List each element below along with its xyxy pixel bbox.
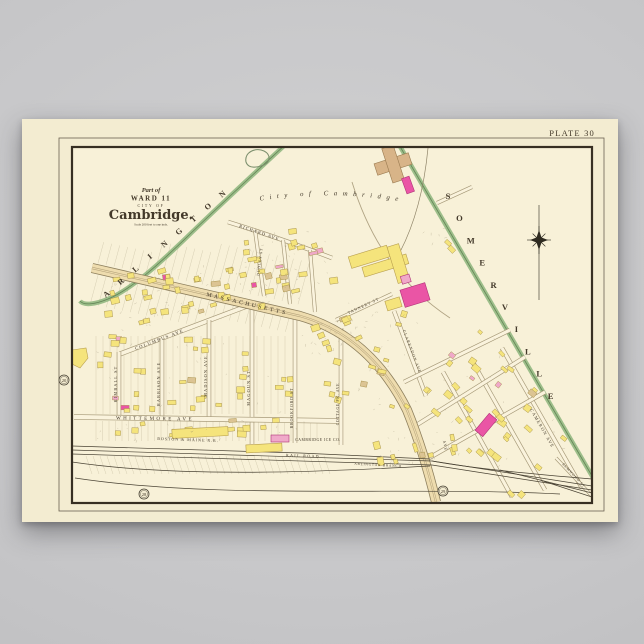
building [184, 337, 193, 342]
building [211, 281, 220, 287]
building [115, 431, 121, 436]
building [329, 391, 335, 397]
building [188, 301, 194, 307]
boundary-letter-somerville: M [467, 235, 475, 245]
product-mockup-background: MASSACHUSETTSAVECOLUMBUS AVEWHITTEMORE A… [0, 0, 644, 644]
street-label-magoun: MAGOUN ST [246, 370, 251, 406]
cartouche-ward: WARD 11 [131, 195, 171, 203]
building [194, 276, 200, 282]
building [181, 307, 188, 314]
ice-house [246, 443, 282, 453]
plate-ref-badge: 28 [139, 489, 149, 499]
building [360, 381, 367, 387]
building [288, 228, 296, 234]
building [276, 278, 281, 284]
building [216, 403, 222, 407]
boundary-letter-somerville: E [548, 391, 554, 401]
building [163, 285, 170, 289]
building [428, 453, 433, 458]
building [134, 391, 139, 396]
plate-ref-number: 20 [62, 378, 67, 383]
map-poster: MASSACHUSETTSAVECOLUMBUS AVEWHITTEMORE A… [22, 119, 618, 522]
building [251, 282, 257, 287]
building [299, 271, 308, 277]
building [287, 376, 293, 382]
boundary-letter-somerville: V [502, 302, 509, 312]
building [132, 428, 139, 434]
boundary-letter-somerville: O [456, 213, 463, 223]
ice-company-building [271, 435, 289, 442]
building [324, 381, 331, 386]
boundary-letter-somerville: L [536, 369, 542, 379]
cartouche-city-name: Cambridge. [109, 208, 193, 223]
building [109, 334, 117, 338]
building [237, 431, 246, 437]
street-label-harrison: HARRISON AVE [156, 362, 161, 407]
building [165, 278, 173, 285]
building [228, 268, 233, 274]
building [179, 380, 186, 384]
building [242, 352, 248, 356]
building [265, 289, 274, 295]
plate-number: PLATE 30 [549, 128, 595, 138]
plate-ref-badge: 29 [438, 486, 448, 496]
plate-ref-badge: 20 [59, 375, 69, 385]
street-label-brookford: BROOKFORD ST [290, 388, 294, 429]
building [193, 347, 198, 351]
boundary-letter-somerville: S [446, 191, 451, 201]
building [175, 287, 181, 294]
building [166, 274, 170, 278]
boundary-letter-somerville: L [525, 346, 531, 356]
building [203, 339, 211, 345]
building [419, 452, 425, 458]
street-label-madison: MADISON AVE [203, 355, 208, 397]
building [111, 340, 119, 346]
street-label-kimball: KIMBALL ST [113, 366, 118, 403]
building [142, 290, 148, 296]
building [201, 347, 208, 353]
building [134, 368, 141, 373]
landmark-label-ice-company: CAMBRIDGE ICE CO. [295, 438, 341, 442]
building [190, 406, 195, 411]
plate-ref-number: 29 [441, 489, 446, 494]
building [342, 391, 349, 395]
building [237, 393, 242, 399]
boundary-letter-somerville: R [491, 280, 498, 290]
building [150, 308, 157, 314]
building [452, 444, 458, 451]
building [239, 272, 246, 278]
street-label-cottage-park: COTTAGE PK. AVE [336, 383, 340, 426]
building [280, 269, 288, 276]
building [104, 352, 112, 358]
building [329, 277, 338, 284]
cartouche-scale-note: Scale 200 feet to one inch. [134, 223, 168, 227]
building [149, 406, 155, 411]
building [133, 405, 139, 410]
building [104, 310, 112, 317]
building [98, 362, 103, 368]
building [272, 418, 279, 423]
building [168, 400, 177, 405]
atlas-map: MASSACHUSETTSAVECOLUMBUS AVEWHITTEMORE A… [22, 119, 618, 522]
building [243, 425, 250, 432]
building [229, 418, 237, 422]
building [261, 425, 267, 430]
building [140, 422, 145, 427]
building [161, 308, 169, 315]
building [188, 377, 196, 383]
building [120, 337, 127, 343]
building [243, 249, 249, 255]
building [281, 377, 285, 381]
building [244, 240, 249, 245]
building [124, 409, 130, 413]
building [125, 294, 132, 301]
building [143, 318, 150, 324]
building [224, 284, 230, 290]
building [127, 273, 134, 279]
building [275, 385, 283, 389]
plate-ref-number: 28 [142, 492, 147, 497]
boundary-letter-somerville: E [479, 258, 485, 268]
cartouche-part-of: Part of [142, 187, 161, 194]
